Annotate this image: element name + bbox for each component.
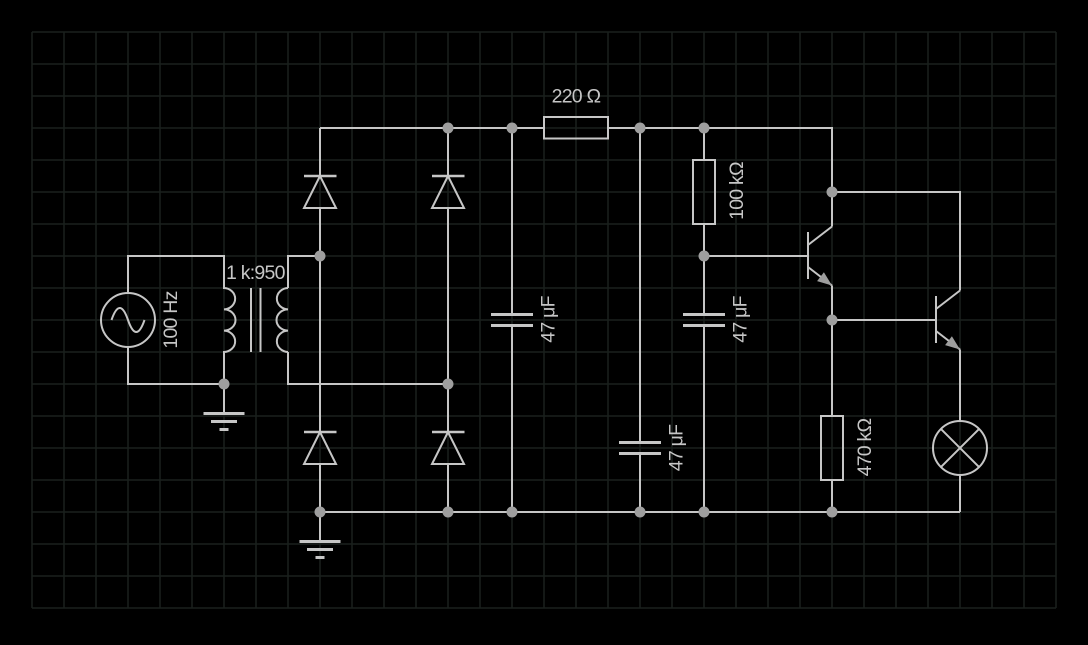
svg-text:470 kΩ: 470 kΩ	[854, 418, 876, 476]
svg-text:220 Ω: 220 Ω	[552, 86, 601, 108]
svg-text:100 kΩ: 100 kΩ	[726, 162, 748, 220]
svg-text:47 μF: 47 μF	[730, 295, 752, 342]
svg-text:1 k:950: 1 k:950	[226, 262, 286, 284]
svg-text:47 μF: 47 μF	[538, 295, 560, 342]
svg-text:47 μF: 47 μF	[666, 424, 688, 471]
svg-text:100 Hz: 100 Hz	[160, 291, 182, 348]
